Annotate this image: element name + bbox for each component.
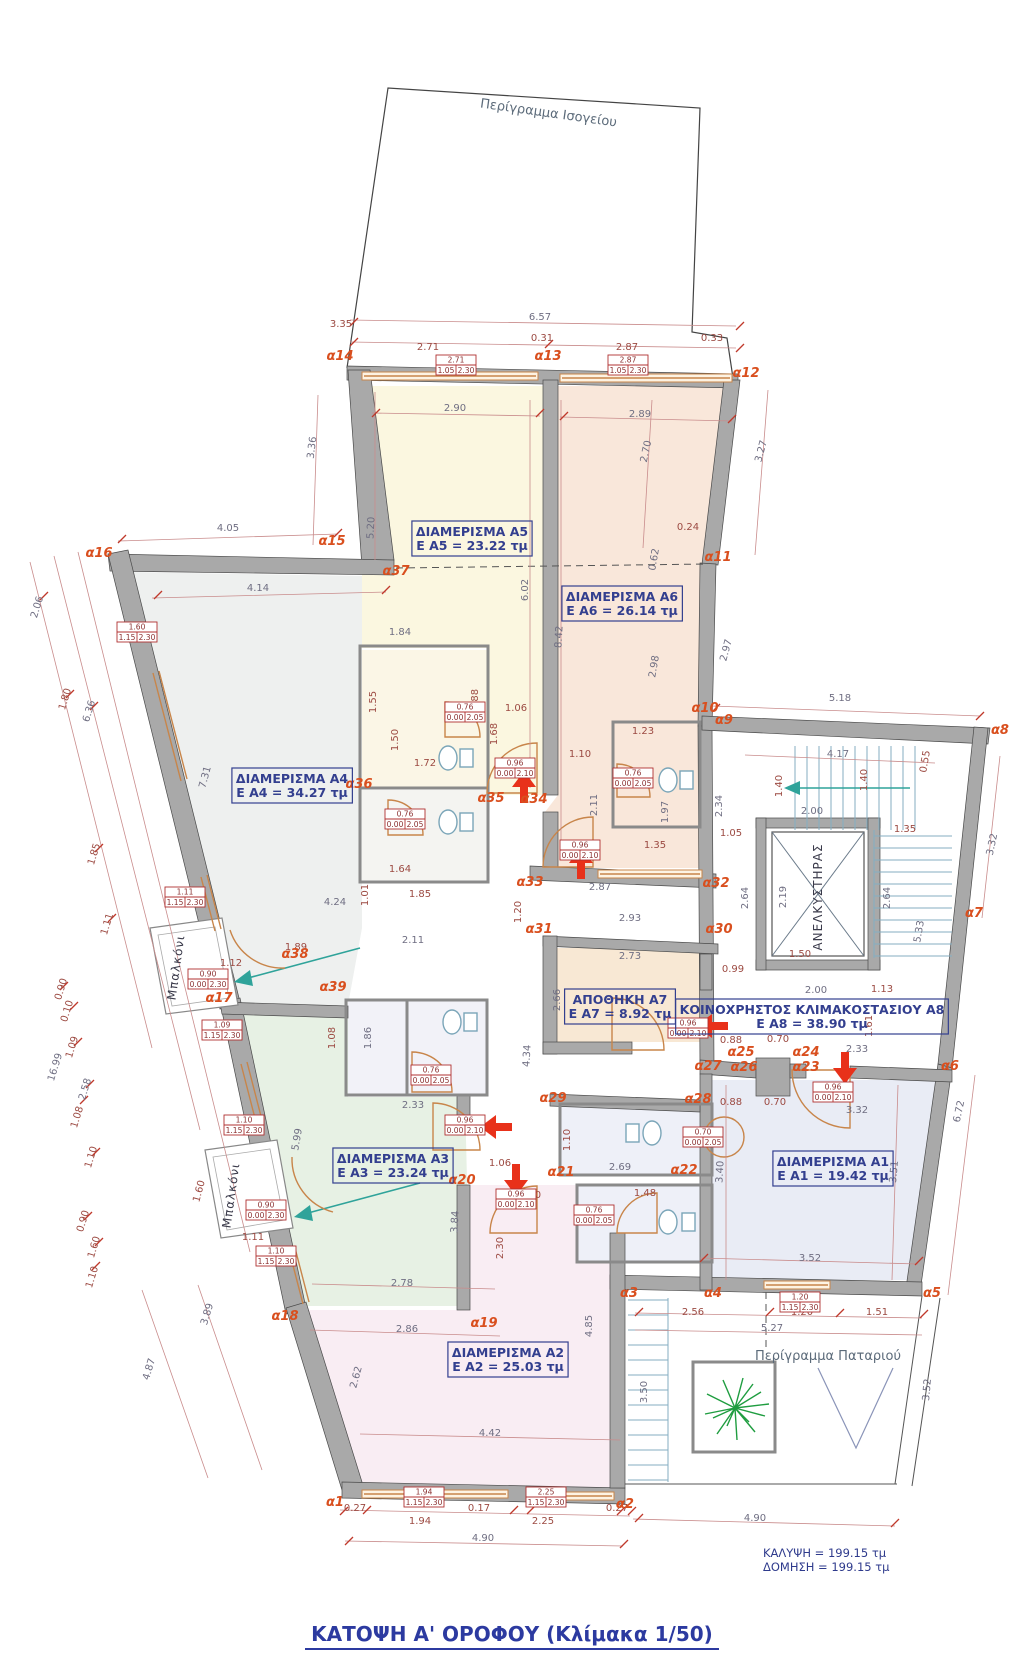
opening-spec: 1.601.152.30 bbox=[117, 622, 157, 642]
dim g-label: 16.99 bbox=[46, 1052, 65, 1083]
alpha-label: α5 bbox=[923, 1286, 941, 1301]
dim-label: 1.05 bbox=[720, 828, 742, 839]
spec-t-label: 1.15 bbox=[226, 1126, 243, 1135]
opening-spec: 1.101.152.30 bbox=[224, 1115, 264, 1135]
spec-t-label: 1.60 bbox=[129, 623, 146, 632]
dim g-label: 5.33 bbox=[912, 920, 927, 944]
plant bbox=[705, 1378, 769, 1440]
alpha-label: α1 bbox=[326, 1495, 344, 1510]
dim-label: 1.50 bbox=[789, 949, 811, 960]
spec-t-label: 0.00 bbox=[615, 779, 632, 788]
dim g-label: 2.78 bbox=[391, 1278, 413, 1289]
spec-t-label: 1.94 bbox=[416, 1488, 433, 1497]
alpha-label: α7 bbox=[965, 906, 984, 921]
dim g-label: 3.40 bbox=[714, 1160, 726, 1183]
spec-t-label: 0.90 bbox=[258, 1201, 275, 1210]
spec-t-label: 0.76 bbox=[457, 703, 474, 712]
floor-plan-drawing: Περίγραμμα ΙσογείουΠερίγραμμα Παταριού 6… bbox=[0, 0, 1024, 1664]
spec-t-label: 2.10 bbox=[518, 1200, 535, 1209]
spec-t-label: 0.00 bbox=[562, 851, 579, 860]
alpha-label: α10 bbox=[691, 701, 718, 716]
opening-spec: 0.760.002.05 bbox=[613, 768, 653, 788]
dim-label: 1.13 bbox=[871, 984, 893, 995]
rlabel-label: ΑΠΟΘΗΚΗ Α7 bbox=[573, 992, 668, 1007]
spec-t-label: 1.15 bbox=[528, 1498, 545, 1507]
dim-label: 0.10 bbox=[59, 999, 76, 1024]
opening-spec: 0.960.002.10 bbox=[445, 1115, 485, 1135]
spec-t-label: 0.00 bbox=[447, 1126, 464, 1135]
spec-t-label: 1.15 bbox=[258, 1257, 275, 1266]
dim g-label: 2.00 bbox=[801, 806, 823, 817]
dim-label: 1.11 bbox=[99, 912, 116, 937]
opening-spec: 2.711.052.30 bbox=[436, 355, 476, 375]
dim-label: 0.17 bbox=[468, 1503, 490, 1514]
alpha-label: α21 bbox=[547, 1165, 574, 1180]
rlabel-label: ΔΙΑΜΕΡΙΣΜΑ Α3 bbox=[337, 1151, 449, 1166]
opening-spec: 1.111.152.30 bbox=[165, 887, 205, 907]
spec-t-label: 2.10 bbox=[690, 1029, 707, 1038]
dim-label: 1.94 bbox=[409, 1516, 431, 1527]
spec-t-label: 2.05 bbox=[433, 1076, 450, 1085]
dim g-label: 5.18 bbox=[829, 693, 851, 704]
alpha-label: α16 bbox=[85, 546, 112, 561]
spec-t-label: 1.11 bbox=[177, 888, 194, 897]
alpha-label: α31 bbox=[525, 922, 552, 937]
spec-t-label: 0.96 bbox=[680, 1019, 697, 1028]
spec-t-label: 2.30 bbox=[268, 1211, 285, 1220]
dim-label: 1.08 bbox=[327, 1027, 338, 1049]
dim-label: 1.64 bbox=[389, 864, 411, 875]
dim g-label: 3.89 bbox=[199, 1302, 216, 1327]
dim g-label: 2.34 bbox=[714, 795, 725, 817]
dim g-label: 6.02 bbox=[520, 579, 531, 601]
alpha-label: α2 bbox=[616, 1497, 634, 1512]
dim-label: 1.85 bbox=[409, 889, 431, 900]
dim g-label: 5.27 bbox=[761, 1323, 783, 1334]
dim-label: 1.11 bbox=[242, 1232, 264, 1243]
dim g-label: 2.73 bbox=[619, 951, 641, 962]
spec-t-label: 2.30 bbox=[548, 1498, 565, 1507]
opening-spec: 0.960.002.10 bbox=[495, 758, 535, 778]
dim-label: 2.30 bbox=[495, 1237, 506, 1259]
dim-label: 1.08 bbox=[69, 1105, 86, 1130]
dim g-label: 2.97 bbox=[718, 638, 734, 662]
spec-t-label: 0.96 bbox=[572, 841, 589, 850]
dim g-label: 3.51 bbox=[888, 1160, 901, 1183]
spec-t-label: 0.00 bbox=[387, 820, 404, 829]
room-label-A7: ΑΠΟΘΗΚΗ Α7E A7 = 8.92 τμ bbox=[565, 989, 676, 1024]
alpha-label: α17 bbox=[205, 991, 233, 1006]
spec-t-label: 2.30 bbox=[224, 1031, 241, 1040]
dim-label: 1.85 bbox=[86, 842, 103, 867]
dim g-label: 3.27 bbox=[753, 439, 769, 463]
opening-spec: 0.760.002.05 bbox=[445, 702, 485, 722]
dim g-label: 4.17 bbox=[827, 749, 849, 760]
alpha-label: α33 bbox=[516, 875, 543, 890]
dim-label: 1.06 bbox=[489, 1158, 511, 1169]
spec-t-label: 0.70 bbox=[695, 1128, 712, 1137]
opening-spec: 0.960.002.10 bbox=[496, 1189, 536, 1209]
spec-t-label: 0.00 bbox=[576, 1216, 593, 1225]
spec-t-label: 1.10 bbox=[236, 1116, 253, 1125]
rlabel-label: ΔΙΑΜΕΡΙΣΜΑ Α5 bbox=[416, 524, 528, 539]
opening-spec: 0.760.002.05 bbox=[574, 1205, 614, 1225]
rlabel-label: ΔΙΑΜΕΡΙΣΜΑ Α2 bbox=[452, 1345, 564, 1360]
alpha-label: α4 bbox=[704, 1286, 722, 1301]
alpha-label: α37 bbox=[382, 564, 410, 579]
free-label: Περίγραμμα Παταριού bbox=[755, 1349, 901, 1364]
opening-spec: 0.760.002.05 bbox=[411, 1065, 451, 1085]
construction-label: ΔΟΜΗΣΗ = 199.15 τμ bbox=[763, 1560, 889, 1574]
spec-t-label: 2.30 bbox=[426, 1498, 443, 1507]
dim-label: 1.60 bbox=[191, 1179, 207, 1203]
spec-t-label: 0.00 bbox=[685, 1138, 702, 1147]
spec-t-label: 0.90 bbox=[200, 970, 217, 979]
dim g-label: 4.90 bbox=[472, 1533, 494, 1544]
dim g-label: 2.66 bbox=[552, 989, 563, 1011]
dim g-label: 2.64 bbox=[740, 887, 751, 909]
spec-t-label: 1.20 bbox=[792, 1293, 809, 1302]
opening-spec: 0.760.002.05 bbox=[385, 809, 425, 829]
dim g-label: 3.36 bbox=[306, 436, 320, 459]
dim g-label: 2.64 bbox=[882, 887, 893, 909]
opening-spec: 2.251.152.30 bbox=[526, 1487, 566, 1507]
alpha-label: α29 bbox=[539, 1091, 566, 1106]
opening-spec: 1.941.152.30 bbox=[404, 1487, 444, 1507]
room-label-A6: ΔΙΑΜΕΡΙΣΜΑ Α6E A6 = 26.14 τμ bbox=[562, 586, 682, 621]
spec-t-label: 0.96 bbox=[508, 1190, 525, 1199]
alpha-label: α25 bbox=[727, 1045, 754, 1060]
dim-label: 0.27 bbox=[344, 1503, 366, 1514]
dim-label: 0.90 bbox=[53, 977, 70, 1002]
room-label-A5: ΔΙΑΜΕΡΙΣΜΑ Α5E A5 = 23.22 τμ bbox=[412, 521, 532, 556]
dim-label: 1.48 bbox=[634, 1188, 656, 1199]
spec-t-label: 2.30 bbox=[187, 898, 204, 907]
spec-t-label: 0.00 bbox=[815, 1093, 832, 1102]
alpha-label: α15 bbox=[318, 534, 345, 549]
spec-t-label: 1.15 bbox=[204, 1031, 221, 1040]
spec-t-label: 2.25 bbox=[538, 1488, 555, 1497]
spec-t-label: 0.00 bbox=[248, 1211, 265, 1220]
alpha-label: α30 bbox=[705, 922, 732, 937]
dim g-label: 2.11 bbox=[589, 794, 600, 816]
spec-t-label: 0.96 bbox=[507, 759, 524, 768]
rlabel-label: E A5 = 23.22 τμ bbox=[416, 538, 528, 553]
opening-spec: 2.871.052.30 bbox=[608, 355, 648, 375]
spec-t-label: 1.09 bbox=[214, 1021, 231, 1030]
spec-t-label: 1.10 bbox=[268, 1247, 285, 1256]
spec-t-label: 0.00 bbox=[498, 1200, 515, 1209]
room-label-A1: ΔΙΑΜΕΡΙΣΜΑ Α1E A1 = 19.42 τμ bbox=[773, 1151, 893, 1186]
dim g-label: 1.97 bbox=[660, 801, 671, 823]
dim-label: 2.56 bbox=[682, 1307, 704, 1318]
dim g-label: 2.58 bbox=[77, 1077, 94, 1102]
dim g-label: 2.89 bbox=[629, 409, 651, 420]
spec-t-label: 0.76 bbox=[397, 810, 414, 819]
dim-label: 1.40 bbox=[859, 769, 870, 791]
dim-label: 1.55 bbox=[368, 691, 379, 713]
spec-t-label: 2.30 bbox=[139, 633, 156, 642]
alpha-label: α6 bbox=[941, 1059, 959, 1074]
dim g-label: 3.50 bbox=[639, 1381, 650, 1403]
rlabel-label: E A2 = 25.03 τμ bbox=[452, 1359, 564, 1374]
spec-t-label: 1.15 bbox=[119, 633, 136, 642]
floor-plan-page: Περίγραμμα ΙσογείουΠερίγραμμα Παταριού 6… bbox=[0, 0, 1024, 1664]
dim g-label: 4.85 bbox=[584, 1315, 595, 1337]
dim-label: 1.60 bbox=[86, 1235, 103, 1260]
dim-label: 1.20 bbox=[513, 901, 524, 923]
dim-label: 1.12 bbox=[220, 958, 242, 969]
dim-label: 1.10 bbox=[569, 749, 591, 760]
alpha-label: α36 bbox=[345, 777, 372, 792]
vlab-label: ΑΝΕΛΚΥΣΤΗΡΑΣ bbox=[811, 843, 825, 950]
dim g-label: 2.90 bbox=[444, 403, 466, 414]
opening-spec: 0.700.002.05 bbox=[683, 1127, 723, 1147]
spec-t-label: 2.30 bbox=[802, 1303, 819, 1312]
spec-t-label: 1.05 bbox=[438, 366, 455, 375]
dim-label: 1.06 bbox=[505, 703, 527, 714]
spec-t-label: 2.10 bbox=[582, 851, 599, 860]
alpha-label: α19 bbox=[470, 1316, 497, 1331]
alpha-label: α38 bbox=[281, 947, 308, 962]
dim g-label: 4.14 bbox=[247, 583, 269, 594]
dim g-label: 2.93 bbox=[619, 913, 641, 924]
dim g-label: 2.69 bbox=[609, 1162, 631, 1173]
dim-label: 1.09 bbox=[64, 1035, 81, 1060]
dim-label: 0.24 bbox=[677, 522, 699, 533]
dim-label: 3.35 bbox=[330, 319, 352, 330]
spec-t-label: 2.30 bbox=[278, 1257, 295, 1266]
spec-t-label: 0.00 bbox=[497, 769, 514, 778]
rlabel-label: ΔΙΑΜΕΡΙΣΜΑ Α1 bbox=[777, 1154, 889, 1169]
dim g-label: 2.86 bbox=[396, 1324, 418, 1335]
spec-t-label: 2.30 bbox=[246, 1126, 263, 1135]
bath-a4 bbox=[362, 790, 488, 882]
opening-spec: 0.900.002.30 bbox=[246, 1200, 286, 1220]
alpha-label: α34 bbox=[520, 792, 547, 807]
rlabel-label: E A6 = 26.14 τμ bbox=[566, 603, 678, 618]
alpha-label: α11 bbox=[704, 550, 731, 565]
dim g-label: 5.20 bbox=[365, 516, 377, 539]
opening-spec: 0.960.002.10 bbox=[813, 1082, 853, 1102]
spec-t-label: 0.96 bbox=[825, 1083, 842, 1092]
dim-label: 2.87 bbox=[616, 342, 638, 353]
dim-label: 1.35 bbox=[644, 840, 666, 851]
dim g-label: 3.52 bbox=[921, 1378, 934, 1401]
dim-label: 1.72 bbox=[414, 758, 436, 769]
dim-label: 2.25 bbox=[532, 1516, 554, 1527]
dim g-label: 2.11 bbox=[402, 935, 424, 946]
dim-label: 1.10 bbox=[83, 1145, 100, 1170]
alpha-label: α27 bbox=[694, 1059, 722, 1074]
opening-spec: 0.900.002.30 bbox=[188, 969, 228, 989]
dim-label: 0.55 bbox=[918, 750, 933, 774]
rlabel-label: ΔΙΑΜΕΡΙΣΜΑ Α6 bbox=[566, 589, 678, 604]
dim g-label: 1.84 bbox=[389, 627, 411, 638]
spec-t-label: 0.00 bbox=[670, 1029, 687, 1038]
rlabel-label: E A4 = 34.27 τμ bbox=[236, 785, 348, 800]
rlabel-label: E A7 = 8.92 τμ bbox=[569, 1006, 672, 1021]
dim-label: 1.01 bbox=[360, 884, 371, 906]
alpha-label: α24 bbox=[792, 1045, 819, 1060]
spec-t-label: 0.96 bbox=[457, 1116, 474, 1125]
dim g-label: 4.87 bbox=[141, 1357, 158, 1382]
rlabel-label: ΔΙΑΜΕΡΙΣΜΑ Α4 bbox=[236, 771, 348, 786]
dim-label: 2.71 bbox=[417, 342, 439, 353]
spec-t-label: 2.05 bbox=[635, 779, 652, 788]
dim g-label: 4.24 bbox=[324, 897, 346, 908]
dim-label: 1.50 bbox=[390, 729, 401, 751]
dim g-label: 3.52 bbox=[799, 1253, 821, 1264]
dim-label: 1.10 bbox=[84, 1265, 101, 1290]
dim g-label: 6.57 bbox=[529, 312, 551, 323]
spec-t-label: 2.10 bbox=[835, 1093, 852, 1102]
dim-label: 1.35 bbox=[894, 824, 916, 835]
dim-label: 0.70 bbox=[764, 1097, 786, 1108]
spec-t-label: 2.05 bbox=[467, 713, 484, 722]
alpha-label: α26 bbox=[730, 1060, 757, 1075]
coverage-label: ΚΑΛΥΨΗ = 199.15 τμ bbox=[763, 1546, 886, 1560]
spec-t-label: 1.15 bbox=[167, 898, 184, 907]
opening-spec: 1.091.152.30 bbox=[202, 1020, 242, 1040]
dim-label: 1.68 bbox=[489, 723, 500, 745]
alpha-label: α18 bbox=[271, 1309, 298, 1324]
spec-t-label: 2.87 bbox=[620, 356, 637, 365]
spec-t-label: 2.05 bbox=[407, 820, 424, 829]
dim-label: 0.70 bbox=[767, 1034, 789, 1045]
spec-t-label: 0.00 bbox=[190, 980, 207, 989]
dim g-label: 4.34 bbox=[521, 1044, 533, 1067]
dim g-label: 2.87 bbox=[589, 882, 611, 893]
alpha-label: α28 bbox=[684, 1092, 711, 1107]
rlabel-label: E A1 = 19.42 τμ bbox=[777, 1168, 889, 1183]
dim-label: 1.80 bbox=[57, 687, 74, 712]
room-label-A2: ΔΙΑΜΕΡΙΣΜΑ Α2E A2 = 25.03 τμ bbox=[448, 1342, 568, 1377]
rlabel-label: ΚΟΙΝΟΧΡΗΣΤΟΣ ΚΛΙΜΑΚΟΣΤΑΣΙΟΥ Α8 bbox=[680, 1002, 945, 1017]
spec-t-label: 2.10 bbox=[517, 769, 534, 778]
spec-t-label: 0.76 bbox=[586, 1206, 603, 1215]
dim g-label: 2.33 bbox=[846, 1044, 868, 1055]
dim g-label: 3.84 bbox=[449, 1210, 461, 1233]
rlabel-label: E A8 = 38.90 τμ bbox=[756, 1016, 868, 1031]
alpha-label: α39 bbox=[319, 980, 346, 995]
dim g-label: 2.33 bbox=[402, 1100, 424, 1111]
dim g-label: 4.05 bbox=[217, 523, 239, 534]
opening-spec: 0.960.002.10 bbox=[668, 1018, 708, 1038]
dim-label: 0.99 bbox=[722, 964, 744, 975]
dim g-label: 8.42 bbox=[553, 625, 565, 648]
spec-t-label: 0.00 bbox=[447, 713, 464, 722]
opening-spec: 1.101.152.30 bbox=[256, 1246, 296, 1266]
spec-t-label: 2.71 bbox=[448, 356, 465, 365]
dim-label: 1.10 bbox=[562, 1129, 573, 1151]
spec-t-label: 2.05 bbox=[596, 1216, 613, 1225]
spec-t-label: 1.05 bbox=[610, 366, 627, 375]
alpha-label: α22 bbox=[670, 1163, 697, 1178]
opening-spec: 0.960.002.10 bbox=[560, 840, 600, 860]
dim-label: 0.90 bbox=[75, 1209, 92, 1234]
rlabel-label: E A3 = 23.24 τμ bbox=[337, 1165, 449, 1180]
dim-label: 1.51 bbox=[866, 1307, 888, 1318]
alpha-label: α13 bbox=[534, 349, 561, 364]
alpha-label: α35 bbox=[477, 791, 504, 806]
dim-label: 1.40 bbox=[774, 775, 785, 797]
dim-label: 0.31 bbox=[531, 333, 553, 344]
spec-t-label: 0.76 bbox=[625, 769, 642, 778]
alpha-label: α14 bbox=[326, 349, 353, 364]
dim g-label: 3.32 bbox=[846, 1105, 868, 1116]
dim g-label: 4.90 bbox=[744, 1513, 766, 1524]
spec-t-label: 2.30 bbox=[458, 366, 475, 375]
dim g-label: 1.86 bbox=[363, 1027, 374, 1049]
dim-label: 1.23 bbox=[632, 726, 654, 737]
spec-t-label: 1.15 bbox=[406, 1498, 423, 1507]
dim-label: 0.33 bbox=[701, 333, 723, 344]
spec-t-label: 2.05 bbox=[705, 1138, 722, 1147]
spec-t-label: 1.15 bbox=[782, 1303, 799, 1312]
spec-t-label: 2.30 bbox=[210, 980, 227, 989]
dim g-label: 6.72 bbox=[952, 1099, 967, 1123]
dim g-label: 2.19 bbox=[778, 886, 789, 908]
dim g-label: 4.42 bbox=[479, 1428, 501, 1439]
room-label-A4: ΔΙΑΜΕΡΙΣΜΑ Α4E A4 = 34.27 τμ bbox=[232, 768, 352, 803]
alpha-label: α23 bbox=[792, 1060, 819, 1075]
drawing-title: ΚΑΤΟΨΗ Α' ΟΡΟΦΟΥ (Κλίμακα 1/50) bbox=[0, 1622, 1024, 1646]
spec-t-label: 2.10 bbox=[467, 1126, 484, 1135]
alpha-label: α12 bbox=[732, 366, 759, 381]
dim-label: 0.88 bbox=[720, 1097, 742, 1108]
room-label-A3: ΔΙΑΜΕΡΙΣΜΑ Α3E A3 = 23.24 τμ bbox=[333, 1148, 453, 1183]
spec-t-label: 2.30 bbox=[630, 366, 647, 375]
dim g-label: 3.32 bbox=[985, 832, 1000, 856]
dim g-label: 2.00 bbox=[805, 985, 827, 996]
alpha-label: α3 bbox=[620, 1286, 638, 1301]
spec-t-label: 0.00 bbox=[413, 1076, 430, 1085]
alpha-label: α32 bbox=[702, 876, 729, 891]
spec-t-label: 0.76 bbox=[423, 1066, 440, 1075]
alpha-label: α8 bbox=[991, 723, 1009, 738]
opening-spec: 1.201.152.30 bbox=[780, 1292, 820, 1312]
